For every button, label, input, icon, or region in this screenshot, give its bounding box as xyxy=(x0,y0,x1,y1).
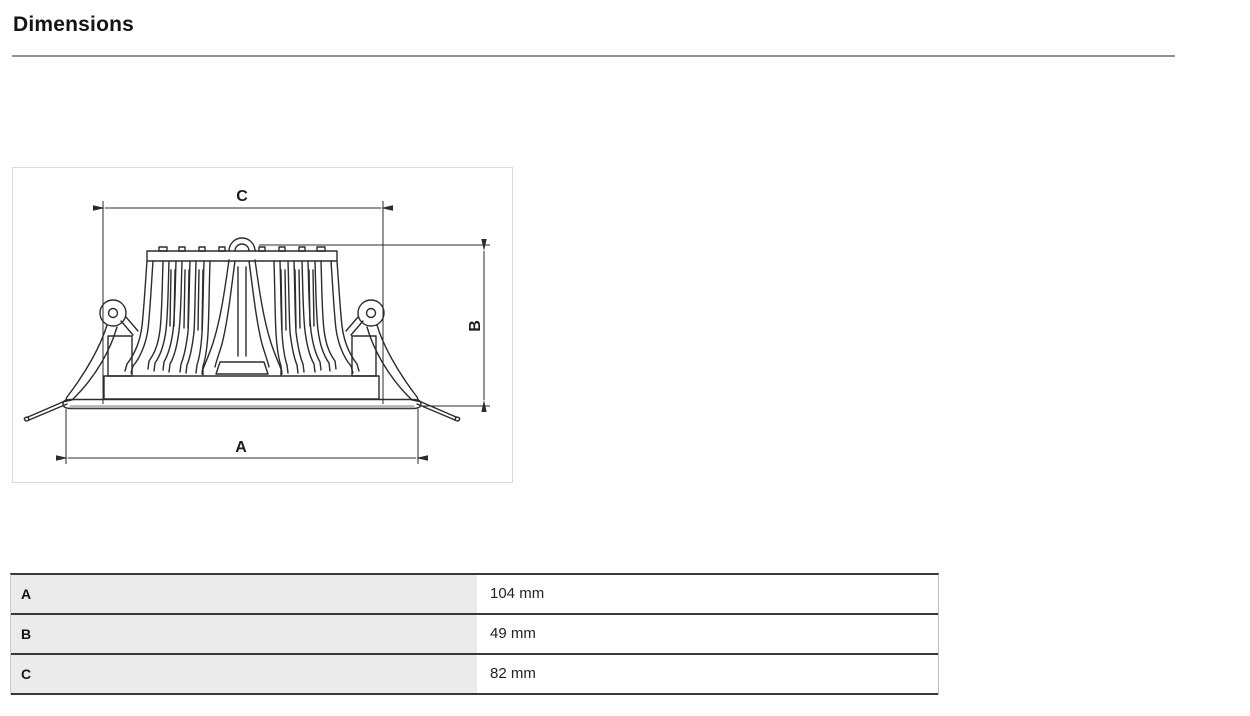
table-row: A 104 mm xyxy=(11,575,938,615)
title-divider xyxy=(12,55,1175,57)
downlight-body xyxy=(24,238,459,421)
dim-label-b: B xyxy=(467,320,484,332)
heatsink-rim xyxy=(147,251,337,261)
dim-label-cell: B xyxy=(11,615,477,653)
dim-value-cell: 104 mm xyxy=(477,575,938,613)
page-title: Dimensions xyxy=(13,13,134,37)
downlight-drawing: C A B xyxy=(13,168,512,482)
dim-value-cell: 82 mm xyxy=(477,655,938,693)
housing-base xyxy=(104,376,379,399)
dimensions-table: A 104 mm B 49 mm C 82 mm xyxy=(10,573,939,695)
table-row: B 49 mm xyxy=(11,615,938,655)
dim-label-cell: C xyxy=(11,655,477,693)
dim-value-cell: 49 mm xyxy=(477,615,938,653)
fins-and-clip-left xyxy=(24,247,225,421)
dim-label-c: C xyxy=(236,188,248,205)
table-row: C 82 mm xyxy=(11,655,938,695)
dimension-diagram: C A B xyxy=(12,167,513,483)
dimension-lines xyxy=(66,201,490,464)
dim-label-a: A xyxy=(235,439,247,456)
dim-label-cell: A xyxy=(11,575,477,613)
fins-and-clip-right xyxy=(259,247,460,421)
